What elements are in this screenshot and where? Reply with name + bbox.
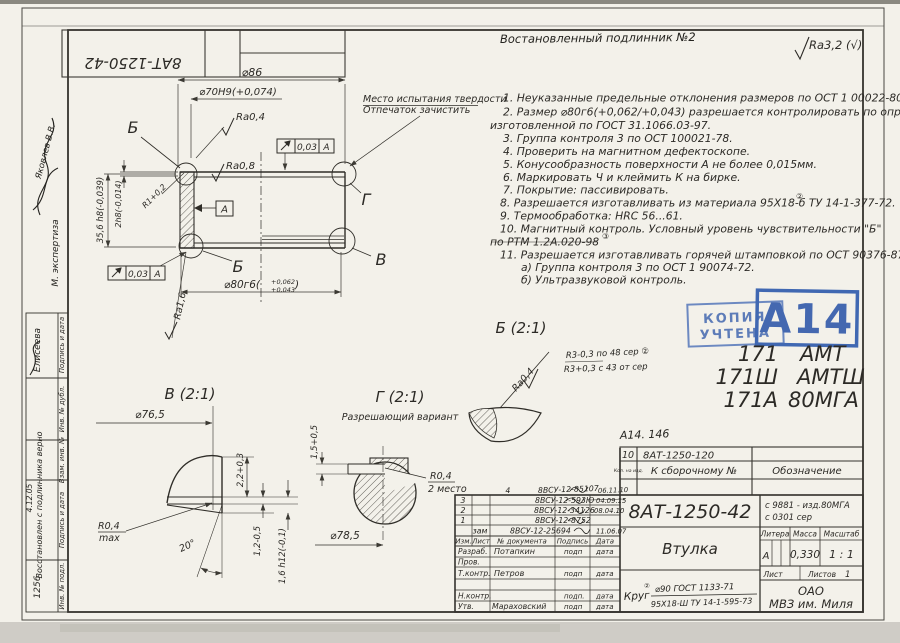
view-v-dim-12: 1,2-0,5	[253, 526, 263, 556]
parts-table: 10 8АТ-1250-120 Кол. на изд. К сборочном…	[614, 447, 863, 495]
type-row-c2: 80МГА	[788, 388, 859, 412]
applicability-1: с 9881 - изд.80МГА	[765, 501, 850, 511]
note-line: 10. Магнитный контроль. Условный уровень…	[500, 223, 881, 236]
revision-mark-2: ②	[796, 192, 803, 201]
view-g: Г (2:1) Разрешающий вариант 1,5+0,5 R0,4…	[310, 388, 467, 545]
role-label: Н.контр.	[458, 592, 492, 601]
role-label: Пров.	[458, 558, 480, 567]
margin-expert-name: Яковлев В.В.	[34, 123, 59, 181]
view-v: В (2:1) ⌀76,5 R0,4 max 20°	[96, 385, 298, 584]
material-bottom: 95Х18-Ш ТУ 14-1-595-73	[651, 596, 753, 609]
note-line: 11. Разрешается изготавливать горячей шт…	[500, 249, 900, 262]
restored-note: Востановленный подлинник №2	[500, 30, 696, 46]
change-date: 08.04.10	[594, 507, 624, 515]
tol-datum-top: А	[322, 143, 329, 153]
view-v-geometry	[96, 406, 298, 578]
view-v-dim-16: 1,6 h12(-0,1)	[278, 528, 288, 584]
tol-value-top: 0,03	[297, 143, 317, 153]
type-row-c1: 171А	[724, 388, 778, 412]
top-left-stamp: 8АТ-1250-42	[62, 30, 345, 77]
label-v: В	[376, 250, 387, 269]
view-v-title: В (2:1)	[165, 385, 216, 403]
margin-cell-label: Взам. инв. №	[58, 437, 66, 483]
view-v-r04: R0,4	[98, 521, 120, 532]
hdr-list: Лист	[471, 538, 491, 546]
view-g-r04-note: 2 место	[428, 484, 467, 495]
type-applicability-list: 171 АМТ 171Ш АМТШ 171А 80МГА	[715, 342, 864, 412]
dim-80-tol-bot: +0,043	[271, 286, 295, 294]
role-label: Утв.	[458, 602, 474, 611]
dim-2h8: 2h8(-0,014)	[114, 180, 123, 227]
hdr-izm: Изм.	[455, 538, 471, 546]
view-g-subtitle: Разрешающий вариант	[342, 412, 459, 423]
role-date: дата	[595, 548, 614, 556]
role-sign: подп	[564, 603, 583, 611]
parts-number: 8АТ-1250-120	[643, 451, 714, 462]
roughness-ra08: Ra0,8	[212, 161, 255, 181]
dim-80-close: )	[294, 279, 299, 291]
dim-356: 35,6 h8(-0,039)	[96, 177, 106, 243]
view-v-dim-765: ⌀76,5	[135, 409, 165, 421]
margin-sign-date-value: 4.12.05	[25, 483, 34, 512]
left-margin-strip: Подпись и дата Инв. № дубл. Взам. инв. №…	[25, 118, 68, 612]
type-row-c2: АМТ	[798, 342, 847, 366]
detail-circles	[175, 162, 356, 258]
tol-value-bottom: 0,03	[128, 270, 148, 280]
detail-leaders	[141, 137, 371, 261]
view-v-angle: 20°	[178, 538, 198, 555]
margin-cell-label: Инв. № дубл.	[58, 386, 66, 433]
sheets-label: Листов	[807, 570, 836, 579]
type-row-c2: АМТШ	[795, 365, 865, 389]
ra08-text: Ra0,8	[226, 161, 255, 172]
hdr-sign: Подпись	[557, 538, 589, 546]
view-g-r04: R0,4	[430, 471, 452, 482]
dim-80: ⌀80г6( +0,062 +0,043 )	[224, 278, 299, 294]
margin-cell-label: Подпись и дата	[58, 492, 66, 548]
drawing-sheet: 8АТ-1250-42 Востановленный подлинник №2 …	[0, 0, 900, 643]
role-sign: подп.	[564, 593, 585, 601]
parts-qty-col: Кол. на изд.	[614, 468, 643, 474]
hdr-doc: № документа	[496, 538, 547, 546]
dim-r1: R1+0,2	[140, 182, 168, 210]
label-b-top: Б	[128, 118, 139, 137]
note-line: 5. Конусообразность поверхности А не бол…	[503, 158, 817, 171]
company-line2: МВЗ им. Миля	[769, 597, 853, 611]
general-roughness-text: Ra3,2 (√)	[809, 38, 862, 52]
note-line: а) Группа контроля 3 по ОСТ 1 90074-72.	[521, 261, 755, 274]
change-doc: 8ВСУ-12-85107	[538, 484, 599, 495]
datum-a-label: А	[220, 205, 228, 216]
material-rev-mark: ②	[644, 582, 650, 590]
change-doc: 8ВСУ-12-8752	[535, 516, 591, 525]
material-top: ⌀90 ГОСТ 1133-71	[655, 582, 735, 595]
role-label: Т.контр.	[458, 569, 491, 578]
change-doc: 8ВСУ-12-25694	[510, 527, 571, 536]
role-sign: подп	[564, 570, 583, 578]
margin-cell-label: Инв. № подл.	[58, 563, 66, 610]
type-row-c1: 171	[738, 342, 778, 366]
note-line: 8. Разрешается изготавливать из материал…	[500, 197, 896, 210]
material-cell: Круг ⌀90 ГОСТ 1133-71 95Х18-Ш ТУ 14-1-59…	[624, 582, 757, 609]
role-name: Мараховский	[492, 602, 546, 611]
scale-value: 1 : 1	[829, 548, 854, 561]
view-g-dim-15: 1,5+0,5	[310, 425, 320, 459]
change-rows: 4 8ВСУ-12-85107 06.11.10 3 8ВСУ-12-593Ю …	[461, 484, 629, 536]
view-b-hand-top: R3-0,3 по 48 сер ②	[566, 347, 650, 361]
role-name: Потапкин	[494, 547, 535, 556]
view-v-dim-22: 2,2+0,3	[236, 453, 246, 487]
hdr-date: Дата	[595, 538, 614, 546]
applicability-2: с 0301 сер	[765, 513, 812, 523]
general-roughness-mark: Ra3,2 (√)	[795, 37, 862, 59]
margin-cell-label: Подпись и дата	[58, 317, 66, 373]
label-g: Г	[362, 190, 372, 209]
roughness-ra04: Ra0,4	[222, 112, 265, 135]
hardness-line1: Место испытания твердости	[363, 94, 507, 105]
hardness-line2: Отпечаток зачистить	[363, 105, 470, 116]
tolerance-frame-top: 0,03 А	[277, 139, 334, 170]
change-num: 2	[461, 506, 466, 515]
a14-stamp: А14	[757, 290, 858, 346]
label-b-bottom: Б	[233, 257, 244, 276]
mass-value: 0,330	[790, 549, 820, 561]
note-line: б) Ультразвуковой контроль.	[521, 274, 687, 287]
sheet-label: Лист	[762, 570, 783, 579]
role-sign: подп	[564, 548, 583, 556]
top-stamp-number: 8АТ-1250-42	[84, 54, 181, 72]
material-prefix: Круг	[624, 590, 651, 603]
part-name: Втулка	[662, 540, 718, 558]
change-num: 3	[461, 496, 466, 505]
change-num: зам	[473, 527, 488, 536]
tolerance-frame-bottom: 0,03 А	[108, 252, 186, 280]
change-doc: 8ВСУ-12-593Ю	[535, 496, 595, 505]
view-g-dim-785: ⌀78,5	[330, 530, 360, 542]
parts-assembly-col: К сборочному №	[651, 465, 737, 477]
technical-notes: 1. Неуказанные предельные отклонения раз…	[490, 92, 900, 287]
mass-label: Масса	[793, 530, 817, 539]
litera-label: Литера	[760, 530, 790, 539]
ra16-text: Ra1,6	[172, 291, 188, 320]
change-date: 06.11.10	[598, 486, 629, 495]
scale-label: Масштаб	[824, 530, 860, 539]
note-line: 9. Термообработка: HRC 56...61.	[500, 210, 683, 223]
role-name: Петров	[494, 569, 525, 578]
note-line: 2. Размер ⌀80г6(+0,062/+0,043) разрешает…	[503, 106, 900, 119]
note-line: 6. Маркировать Ч и клеймить К на бирке.	[503, 171, 741, 184]
revision-mark-3: ③	[602, 232, 609, 241]
view-b-title: Б (2:1)	[496, 319, 547, 337]
view-v-r04-max: max	[99, 533, 120, 544]
role-date: дата	[595, 593, 614, 601]
doc-number: 8АТ-1250-42	[629, 501, 752, 523]
note-line: 7. Покрытие: пассивировать.	[503, 184, 669, 197]
view-b-hand-bottom: R3+0,3 с 43 от сер	[564, 362, 648, 375]
change-num: 4	[505, 486, 510, 495]
litera-value: А	[762, 551, 770, 562]
change-date: 04.09.15	[596, 497, 626, 505]
change-doc: 8ВСУ-12-34126	[534, 506, 595, 515]
parts-designation-col: Обозначение	[772, 465, 841, 477]
dim-80-base: ⌀80г6(	[224, 279, 261, 291]
type-row-c1: 171Ш	[715, 365, 778, 389]
dim-86: ⌀86	[242, 66, 263, 79]
view-b-geometry	[469, 352, 549, 442]
role-date: дата	[595, 570, 614, 578]
datum-a: А	[194, 201, 233, 216]
view-b: Б (2:1) Ra0,4 R3-0,3 по 48 сер ② R3+0,3 …	[469, 319, 649, 442]
roughness-ra16: Ra1,6	[165, 291, 189, 339]
note-line: изготовленной по ГОСТ 31.1066.03-97.	[490, 119, 711, 132]
margin-inv-value: 1256	[33, 575, 43, 598]
view-g-title: Г (2:1)	[376, 388, 425, 406]
part-outline	[180, 152, 345, 305]
note-line: 3. Группа контроля 3 по ОСТ 100021-78.	[503, 132, 733, 145]
margin-expertise: М. экспертиза	[51, 219, 61, 286]
sheets-value: 1	[845, 570, 850, 580]
role-label: Разраб.	[458, 547, 487, 556]
company-line1: ОАО	[798, 584, 824, 598]
margin-restored-note: Восстановлен с подлинника верно	[35, 431, 44, 578]
parts-qty: 10	[622, 450, 634, 461]
ra04-text: Ra0,4	[236, 112, 265, 123]
note-line: 4. Проверить на магнитном дефектоскопе.	[503, 145, 750, 158]
change-num: 1	[461, 516, 466, 525]
main-view: ⌀86 ⌀70Н9(+0,074) 35,6 h8(-0,039) 2h8(-0…	[96, 66, 507, 339]
dim-70: ⌀70Н9(+0,074)	[199, 87, 276, 98]
hardness-note: Место испытания твердости Отпечаток зачи…	[350, 94, 507, 166]
change-date: 11.06.07	[596, 528, 627, 536]
dim-80-tol-top: +0,062	[271, 278, 295, 286]
role-date: дата	[595, 603, 614, 611]
a14-hand-ref: А14. 146	[619, 427, 670, 442]
tol-datum-bottom: А	[153, 270, 160, 280]
note-line: 1. Неуказанные предельные отклонения раз…	[503, 92, 900, 105]
a14-stamp-text: А14	[759, 294, 855, 344]
